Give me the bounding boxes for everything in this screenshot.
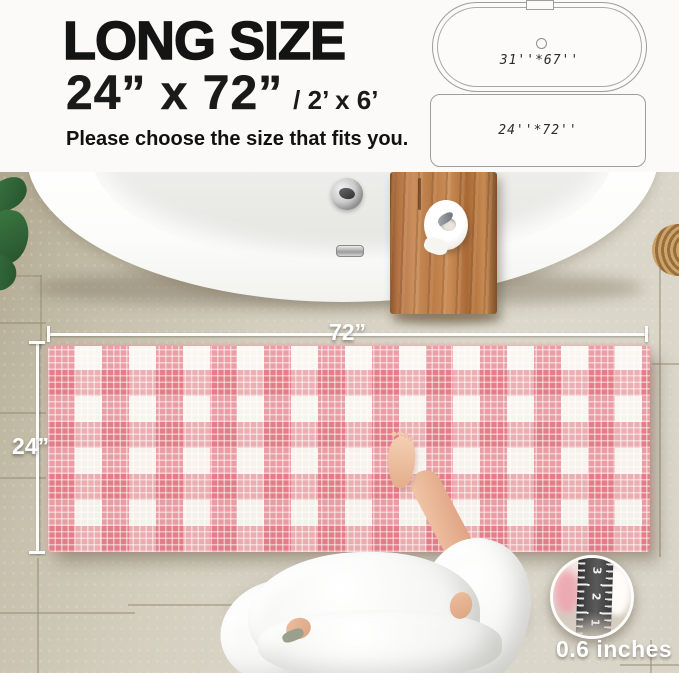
dimension-cap xyxy=(645,326,648,342)
bathtub-faucet-notch xyxy=(526,0,554,10)
product-image: LONG SIZE 24” x 72” / 2’ x 6’ Please cho… xyxy=(0,0,679,673)
width-dimension-line: 72” xyxy=(47,325,648,345)
grout-line xyxy=(0,322,46,324)
size-secondary-text: / 2’ x 6’ xyxy=(293,85,378,116)
size-primary-text: 24” x 72” xyxy=(66,66,283,121)
bathtub-outline-diagram: 31''*67'' xyxy=(432,2,647,92)
size-instruction-text: Please choose the size that fits you. xyxy=(66,128,408,151)
ruler-base-haze xyxy=(553,612,631,636)
faucet-control-icon xyxy=(331,178,363,210)
page-title: LONG SIZE xyxy=(63,10,345,72)
grout-line xyxy=(652,363,679,365)
pile-height-inset: 3 2 1 xyxy=(550,555,634,639)
lifestyle-photo: 72” 24” 3 2 xyxy=(0,172,679,673)
size-row: 24” x 72” / 2’ x 6’ xyxy=(66,66,378,121)
wicker-basket xyxy=(652,224,679,276)
grout-line xyxy=(620,664,679,666)
height-dimension-label: 24” xyxy=(12,433,49,460)
dimension-cap xyxy=(47,326,50,342)
ruler-number: 3 xyxy=(590,567,603,575)
mat-size-label: 24''*72'' xyxy=(431,123,645,138)
width-dimension-label: 72” xyxy=(329,319,366,346)
grout-line xyxy=(0,612,135,614)
gingham-bath-rug xyxy=(48,346,650,552)
height-dimension-line: 24” xyxy=(30,341,50,554)
header-panel: LONG SIZE 24” x 72” / 2’ x 6’ Please cho… xyxy=(0,0,679,172)
dimension-cap xyxy=(29,551,45,554)
tray-groove xyxy=(418,178,421,210)
drain-lever-icon xyxy=(336,245,364,257)
mat-outline-diagram: 24''*72'' xyxy=(430,94,646,167)
dimension-cap xyxy=(29,341,45,344)
bathtub-size-label: 31''*67'' xyxy=(433,53,646,68)
pile-thickness-label: 0.6 inches xyxy=(556,636,672,663)
bathtub-drain-dot xyxy=(536,38,547,49)
grout-line xyxy=(37,558,39,673)
ruler-number: 2 xyxy=(589,592,602,600)
grout-line xyxy=(659,267,661,557)
